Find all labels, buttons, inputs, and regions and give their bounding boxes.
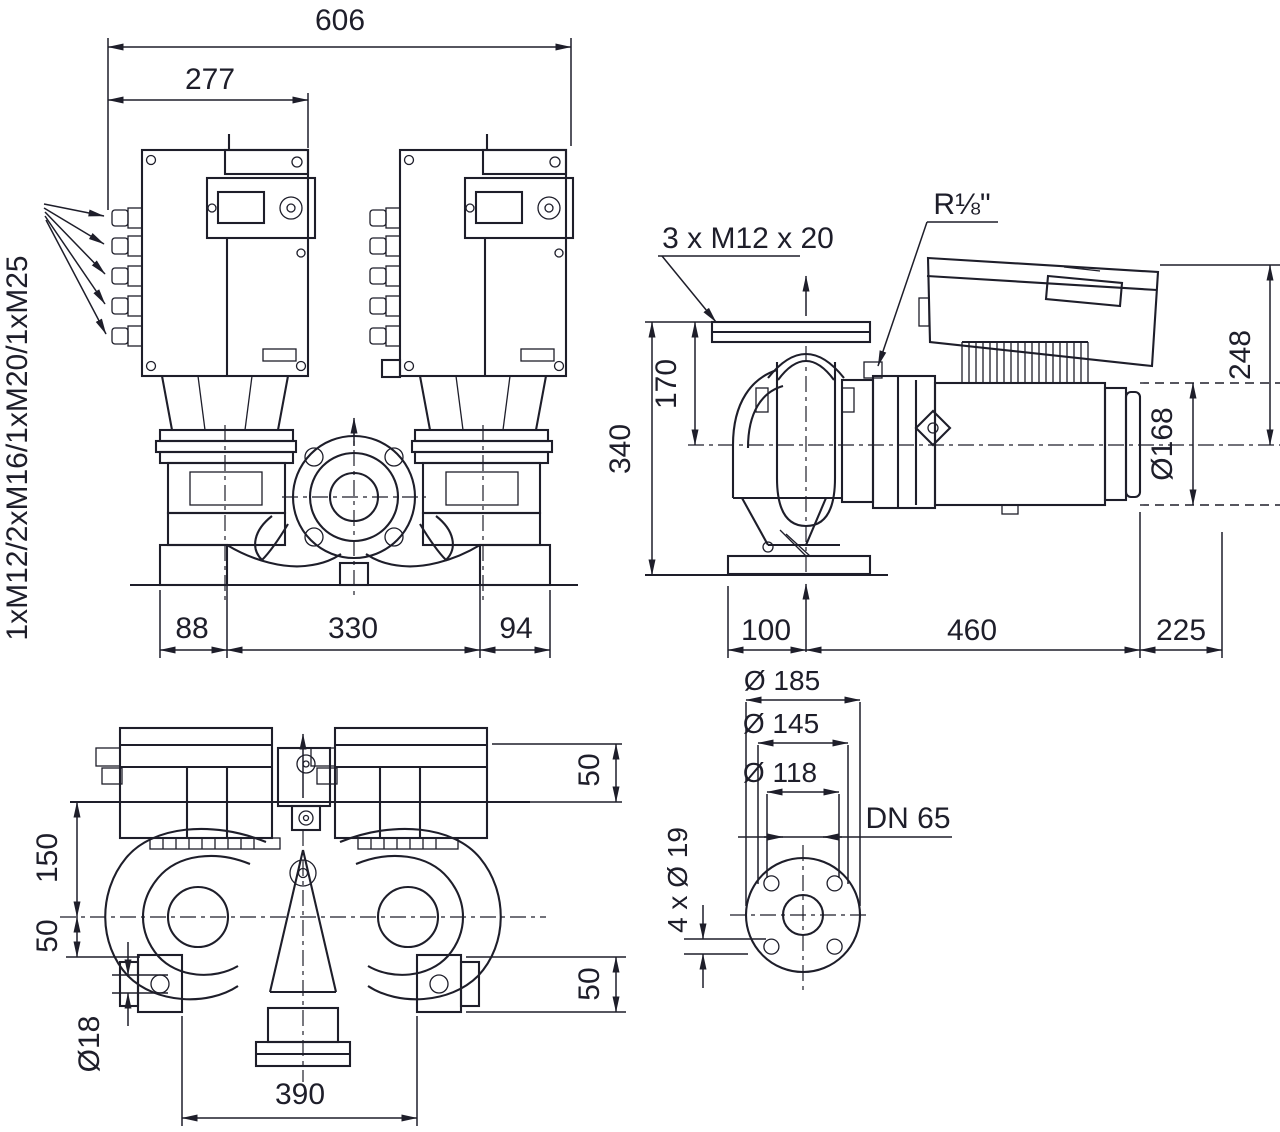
label-nominal-diameter: DN 65 bbox=[865, 802, 950, 835]
dim-axis-to-foot: 50 bbox=[31, 919, 64, 952]
dim-foot-span: 390 bbox=[275, 1078, 325, 1111]
dim-foot-right: 94 bbox=[499, 612, 532, 645]
dim-flange-outer: Ø 185 bbox=[744, 665, 820, 696]
dim-foot-left: 88 bbox=[175, 612, 208, 645]
dim-port-span: 330 bbox=[328, 612, 378, 645]
dim-box-width: 277 bbox=[185, 63, 235, 96]
label-bolt-holes-4x19: 4 x Ø 19 bbox=[662, 827, 693, 933]
dim-bolt-circle: Ø 145 bbox=[743, 708, 819, 739]
label-bolt-holes-m12: 3 x M12 x 20 bbox=[662, 222, 834, 255]
label-cable-glands: 1xM12/2xM16/1xM20/1xM25 bbox=[1, 255, 34, 640]
dim-plate-to-axis: 150 bbox=[31, 833, 64, 883]
dim-axis-height: 170 bbox=[650, 359, 683, 409]
drawing-canvas: 606 277 88 330 94 1xM12/2xM16/1xM20/1xM2… bbox=[0, 0, 1280, 1132]
side-view: 3 x M12 x 20 R⅛" 170 340 248 Ø168 100 46… bbox=[604, 188, 1280, 658]
flange-view: Ø 185 Ø 145 Ø 118 DN 65 4 x Ø 19 bbox=[662, 665, 952, 992]
dim-axis-to-motor-end: 460 bbox=[947, 614, 997, 647]
front-view: 606 277 88 330 94 1xM12/2xM16/1xM20/1xM2… bbox=[1, 4, 578, 658]
dim-hub: Ø 118 bbox=[743, 757, 817, 788]
label-vent-plug-r18: R⅛" bbox=[933, 188, 990, 221]
dim-total-width: 606 bbox=[315, 4, 365, 37]
dim-motor-diameter: Ø168 bbox=[1146, 407, 1179, 480]
top-view: 150 50 50 50 Ø18 390 bbox=[31, 728, 626, 1126]
pump-dimensional-drawing: 606 277 88 330 94 1xM12/2xM16/1xM20/1xM2… bbox=[0, 0, 1280, 1132]
dim-motor-end-to-box: 225 bbox=[1156, 614, 1206, 647]
dim-rear-overhang: 50 bbox=[573, 753, 606, 786]
dim-foot-offset: 100 bbox=[741, 614, 791, 647]
label-foot-hole-dia: Ø18 bbox=[73, 1016, 106, 1073]
dim-foot-to-flange: 50 bbox=[573, 967, 606, 1000]
dim-box-height: 248 bbox=[1224, 330, 1257, 380]
dim-height-total: 340 bbox=[604, 424, 637, 474]
